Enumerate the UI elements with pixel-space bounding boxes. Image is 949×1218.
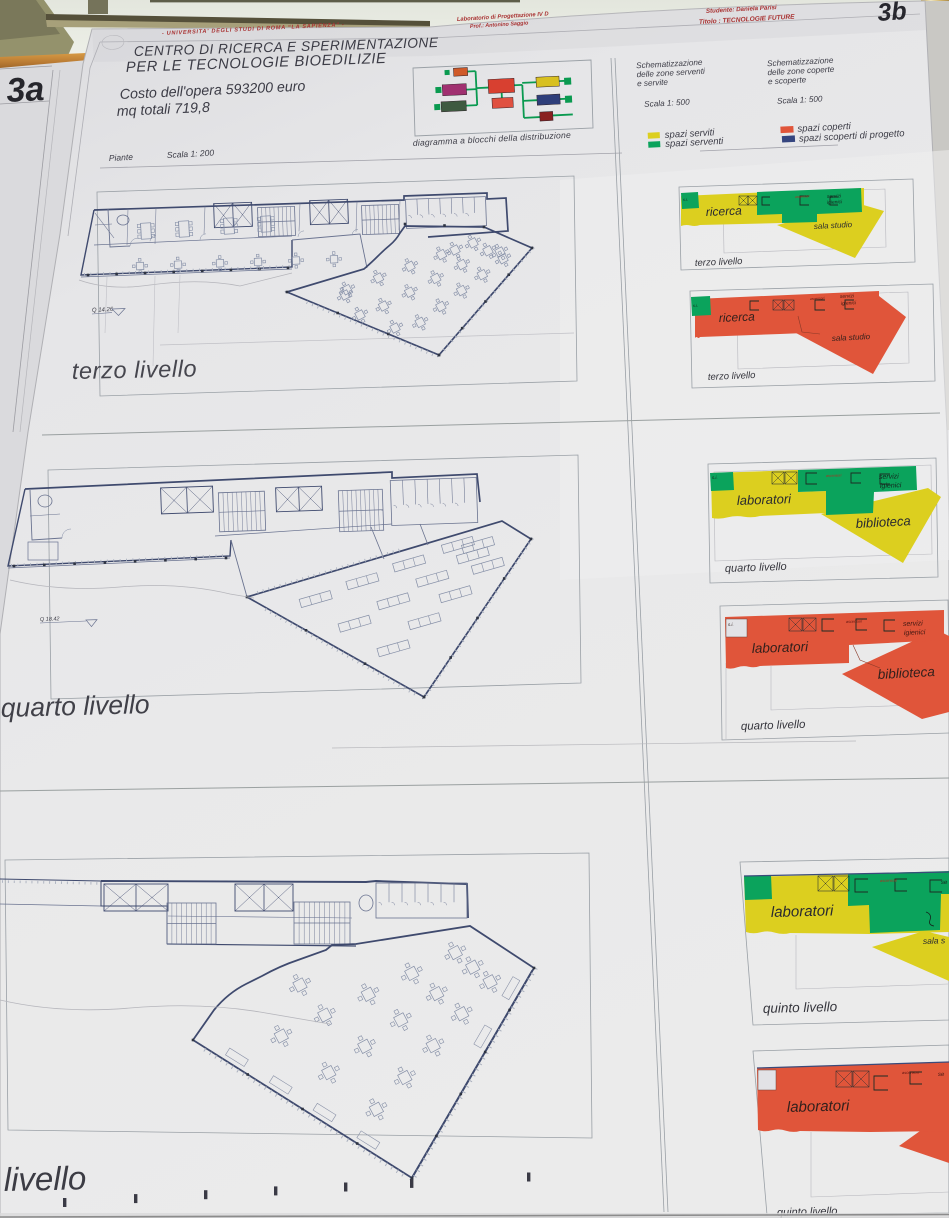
svg-text:quarto livello: quarto livello	[741, 719, 807, 733]
svg-text:ascensori: ascensori	[795, 194, 810, 199]
svg-text:biblioteca: biblioteca	[877, 664, 935, 682]
svg-text:s.i.: s.i.	[712, 475, 718, 480]
svg-text:igienici: igienici	[827, 199, 843, 206]
svg-text:ricerca: ricerca	[706, 203, 743, 219]
svg-text:3b: 3b	[876, 0, 907, 27]
svg-text:ascensori: ascensori	[846, 619, 863, 624]
svg-text:s.i.: s.i.	[728, 622, 734, 627]
svg-text:laboratori: laboratori	[787, 1097, 851, 1116]
svg-text:ricerca: ricerca	[719, 309, 756, 325]
svg-text:igienici: igienici	[904, 629, 926, 637]
svg-text:quinto livello: quinto livello	[763, 999, 838, 1016]
svg-text:laboratori: laboratori	[737, 491, 793, 508]
svg-text:servizi: servizi	[840, 293, 855, 300]
svg-text:quarto livello: quarto livello	[725, 561, 787, 575]
svg-text:servizi: servizi	[903, 620, 924, 628]
svg-text:biblioteca: biblioteca	[855, 513, 911, 531]
svg-text:laboratori: laboratori	[771, 902, 835, 921]
svg-text:livello: livello	[3, 1159, 86, 1198]
svg-text:terzo livello: terzo livello	[708, 370, 756, 383]
svg-text:ascensori: ascensori	[810, 296, 825, 301]
svg-text:Piante: Piante	[109, 152, 134, 163]
svg-text:terzo livello: terzo livello	[72, 355, 198, 384]
svg-text:se: se	[938, 1072, 945, 1078]
svg-text:terzo livello: terzo livello	[695, 256, 743, 269]
svg-text:ascensori: ascensori	[880, 878, 897, 883]
svg-text:e servite: e servite	[637, 78, 669, 89]
svg-text:sala s: sala s	[923, 935, 946, 946]
svg-text:quarto livello: quarto livello	[0, 689, 150, 723]
svg-text:s.i.: s.i.	[683, 197, 688, 202]
svg-text:ascensori: ascensori	[826, 473, 842, 478]
svg-text:3a: 3a	[5, 70, 45, 110]
svg-text:laboratori: laboratori	[752, 639, 810, 656]
svg-text:s.i.: s.i.	[693, 303, 698, 308]
svg-text:ascensori: ascensori	[902, 1070, 919, 1075]
svg-text:servizi: servizi	[879, 473, 900, 481]
svg-text:se: se	[941, 880, 948, 886]
svg-text:igienici: igienici	[880, 482, 902, 490]
svg-text:igienici: igienici	[841, 300, 857, 307]
